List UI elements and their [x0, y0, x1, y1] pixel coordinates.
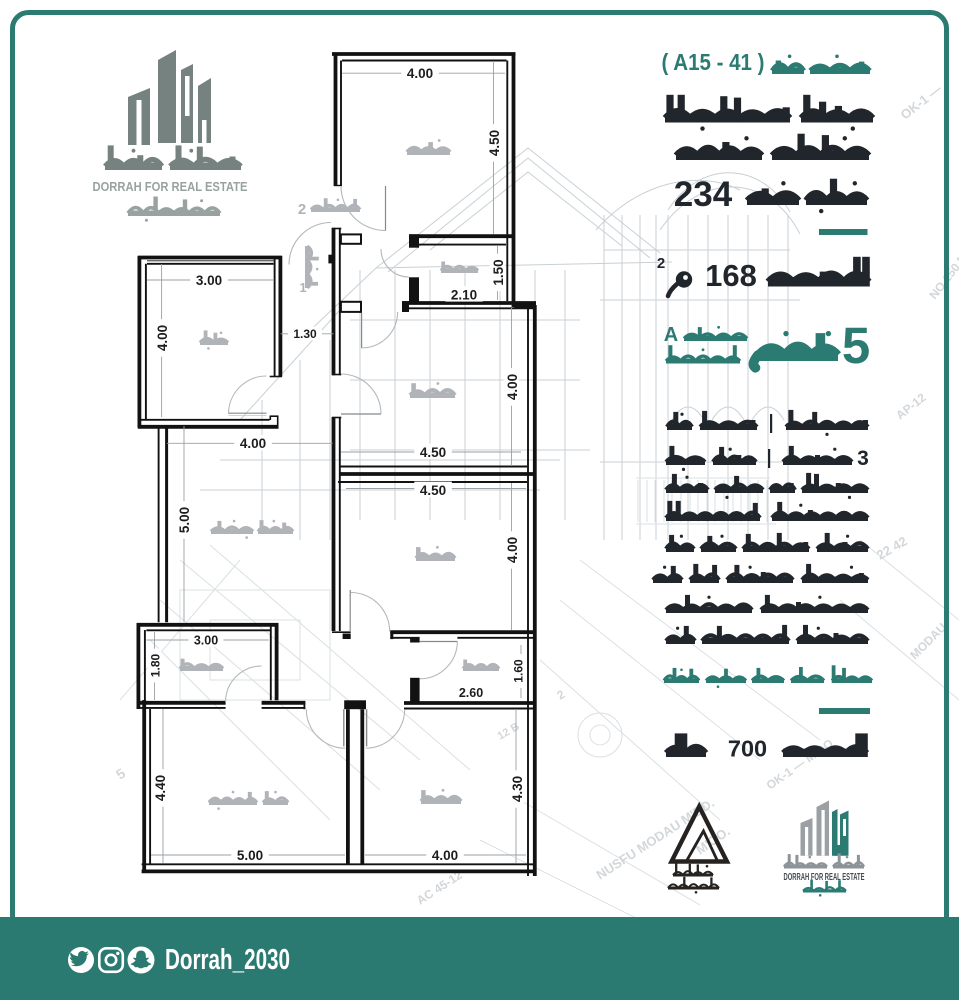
svg-text:1.80: 1.80: [148, 653, 162, 677]
svg-text:2: 2: [657, 255, 665, 272]
svg-text:3.00: 3.00: [196, 273, 222, 288]
svg-text:1: 1: [299, 280, 306, 295]
svg-text:234: 234: [674, 175, 733, 214]
svg-text:2.60: 2.60: [459, 686, 483, 700]
svg-text:A: A: [664, 324, 678, 346]
svg-text:1.60: 1.60: [511, 659, 525, 683]
svg-text:DORRAH FOR REAL ESTATE: DORRAH FOR REAL ESTATE: [784, 872, 865, 883]
svg-text:4.50: 4.50: [420, 483, 446, 498]
svg-text:1.50: 1.50: [491, 259, 506, 285]
svg-text:4.00: 4.00: [505, 374, 520, 400]
svg-text:4.00: 4.00: [505, 537, 520, 563]
svg-text:2: 2: [298, 201, 306, 218]
svg-text:4.50: 4.50: [420, 445, 446, 460]
svg-text:5: 5: [842, 317, 870, 374]
svg-text:4.40: 4.40: [153, 775, 168, 801]
svg-text:2.10: 2.10: [451, 287, 477, 302]
svg-text:4.50: 4.50: [487, 130, 502, 156]
svg-text:3: 3: [857, 447, 869, 470]
svg-text:4.00: 4.00: [407, 66, 433, 81]
svg-text:5.00: 5.00: [237, 848, 263, 863]
svg-text:4.30: 4.30: [510, 776, 525, 802]
svg-text:1.30: 1.30: [293, 327, 317, 341]
svg-text:DORRAH FOR REAL ESTATE: DORRAH FOR REAL ESTATE: [93, 180, 248, 194]
svg-text:700: 700: [728, 736, 767, 762]
svg-text:( A15 - 41 ): ( A15 - 41 ): [662, 49, 765, 75]
svg-text:168: 168: [705, 258, 757, 293]
svg-text:4.00: 4.00: [432, 848, 458, 863]
svg-text:4.00: 4.00: [240, 436, 266, 451]
svg-text:Dorrah_2030: Dorrah_2030: [165, 944, 290, 976]
svg-text:3.00: 3.00: [194, 634, 218, 648]
svg-text:5.00: 5.00: [177, 507, 192, 533]
svg-text:4.00: 4.00: [155, 325, 170, 351]
